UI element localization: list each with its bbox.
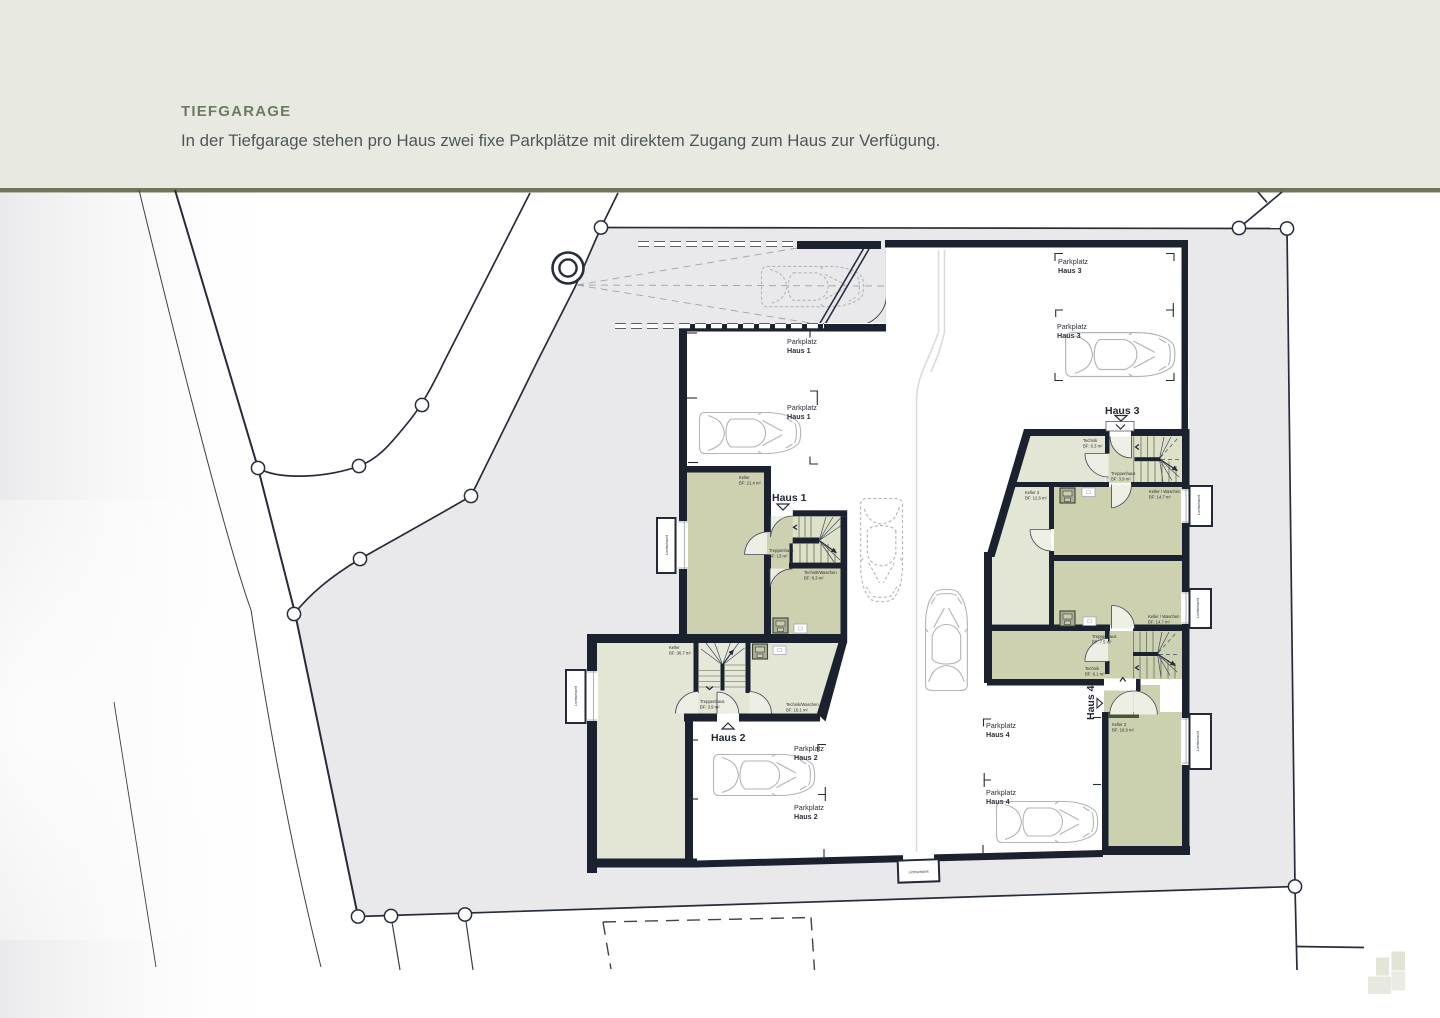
svg-text:Treppenhaus: Treppenhaus [700, 699, 725, 704]
svg-text:Haus 2: Haus 2 [711, 732, 746, 744]
svg-text:BF: 6.3 m²: BF: 6.3 m² [1083, 444, 1103, 449]
svg-text:Keller: Keller [739, 475, 750, 480]
svg-text:Keller 3: Keller 3 [1025, 490, 1040, 495]
svg-text:Lichtschacht: Lichtschacht [909, 870, 929, 875]
svg-text:BF: 36.7 m²: BF: 36.7 m² [669, 651, 691, 656]
svg-text:Haus 3: Haus 3 [1058, 266, 1082, 275]
svg-text:Treppenhaus: Treppenhaus [1092, 634, 1117, 639]
svg-text:Haus 1: Haus 1 [787, 346, 811, 355]
svg-text:Parkplatz: Parkplatz [986, 788, 1016, 797]
svg-text:Keller 2: Keller 2 [1112, 722, 1127, 727]
svg-text:BF: 8.3 m²: BF: 8.3 m² [804, 576, 824, 581]
svg-text:Haus 2: Haus 2 [794, 812, 818, 821]
svg-text:BF: 14.7 m²: BF: 14.7 m² [1149, 495, 1171, 500]
svg-text:Haus 1: Haus 1 [772, 492, 807, 504]
svg-text:Technik: Technik [1083, 438, 1098, 443]
svg-text:BF: 16.1 m²: BF: 16.1 m² [786, 708, 808, 713]
svg-text:Parkplatz: Parkplatz [794, 744, 824, 753]
svg-text:Haus 2: Haus 2 [794, 753, 818, 762]
svg-text:BF: 21.4 m²: BF: 21.4 m² [739, 481, 761, 486]
svg-text:Parkplatz: Parkplatz [794, 803, 824, 812]
svg-text:BF: 19.9 m²: BF: 19.9 m² [1112, 728, 1134, 733]
svg-text:Treppenhaus: Treppenhaus [769, 548, 794, 553]
svg-text:Haus 3: Haus 3 [1105, 405, 1140, 417]
svg-text:BF: 7.5 m²: BF: 7.5 m² [1092, 640, 1112, 645]
svg-text:Parkplatz: Parkplatz [1058, 257, 1088, 266]
svg-text:Haus 3: Haus 3 [1057, 331, 1081, 340]
svg-text:Parkplatz: Parkplatz [1057, 322, 1087, 331]
svg-text:Lichtschacht: Lichtschacht [1196, 598, 1200, 618]
svg-text:Haus 1: Haus 1 [787, 412, 811, 421]
svg-text:Haus 4: Haus 4 [986, 797, 1010, 806]
svg-text:Lichtschacht: Lichtschacht [665, 535, 669, 555]
svg-text:Keller / Waschen: Keller / Waschen [1148, 614, 1180, 619]
svg-text:BF: 12.6 m²: BF: 12.6 m² [1025, 496, 1047, 501]
svg-text:Lichtschacht: Lichtschacht [1196, 731, 1200, 751]
svg-text:BF: 6.1 m²: BF: 6.1 m² [1085, 672, 1105, 677]
svg-text:Keller: Keller [669, 645, 680, 650]
svg-text:Lichtschacht: Lichtschacht [574, 686, 578, 706]
svg-text:Haus 4: Haus 4 [1085, 685, 1097, 720]
svg-text:Parkplatz: Parkplatz [787, 337, 817, 346]
svg-text:Technik/Waschen: Technik/Waschen [786, 702, 819, 707]
svg-text:BF: 3.9 m²: BF: 3.9 m² [700, 705, 720, 710]
svg-text:Technik: Technik [1085, 666, 1100, 671]
svg-text:Keller / Waschen: Keller / Waschen [1149, 489, 1181, 494]
svg-text:Lichtschacht: Lichtschacht [1197, 495, 1201, 515]
svg-text:Haus 4: Haus 4 [986, 730, 1010, 739]
svg-text:TIEFGARAGE: TIEFGARAGE [181, 103, 291, 120]
svg-text:BF: 14.7 m²: BF: 14.7 m² [1148, 620, 1170, 625]
svg-text:Technik/Waschen: Technik/Waschen [804, 570, 837, 575]
svg-text:BF: 3.9 m²: BF: 3.9 m² [1111, 477, 1131, 482]
svg-text:Parkplatz: Parkplatz [986, 721, 1016, 730]
svg-text:In der Tiefgarage stehen pro H: In der Tiefgarage stehen pro Haus zwei f… [181, 131, 940, 150]
svg-text:Parkplatz: Parkplatz [787, 403, 817, 412]
svg-text:BF: 13 m²: BF: 13 m² [769, 554, 788, 559]
svg-text:Treppenhaus: Treppenhaus [1111, 471, 1136, 476]
